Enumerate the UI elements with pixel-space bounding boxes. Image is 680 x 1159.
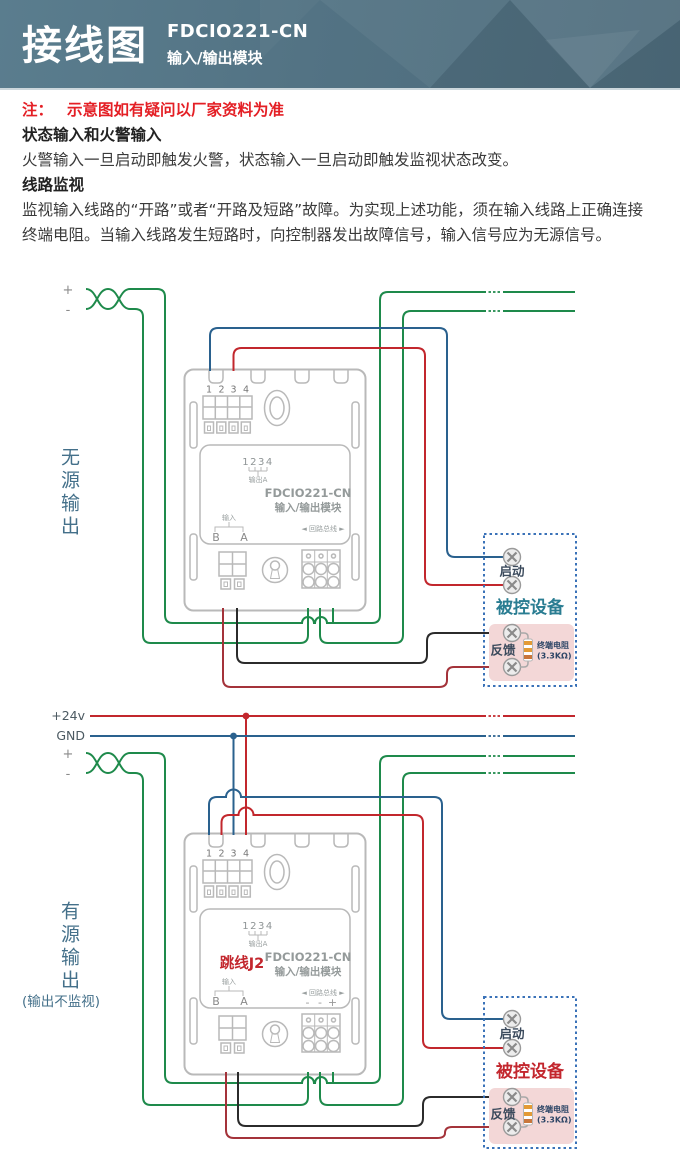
minus-label-top: - <box>66 303 71 318</box>
resistor-band <box>524 648 532 652</box>
screw-terminal <box>504 1040 521 1057</box>
resistor-name: 终端电阻 <box>536 1104 569 1114</box>
page-title: 接线图 <box>22 13 148 71</box>
resistor-band <box>524 655 532 659</box>
note-text: 示意图如有疑问以厂家资料为准 <box>67 101 284 119</box>
resistor-band <box>524 641 532 645</box>
loop-polarity-plus: + <box>328 996 337 1009</box>
header-banner: 接线图 FDCIO221-CN 输入/输出模块 <box>0 0 680 90</box>
output-label: 输出A <box>249 475 268 484</box>
loop-bus-label: ◄ 回路总线 ► <box>301 524 345 533</box>
input-b: B <box>212 531 220 544</box>
product-subtitle: 输入/输出模块 <box>167 47 262 68</box>
resistor-band <box>524 1112 532 1116</box>
feedback-label: 反馈 <box>490 1107 516 1122</box>
resistor-value: (3.3KΩ) <box>537 652 571 661</box>
input-label: 输入 <box>222 513 236 522</box>
side-label-active-output: 有源输出 <box>56 901 83 993</box>
feedback-label: 反馈 <box>490 643 516 658</box>
screw-terminal <box>504 659 521 676</box>
module-title: FDCIO221-CN <box>265 486 352 500</box>
screw-terminal <box>504 1011 521 1028</box>
start-label: 启动 <box>499 1026 525 1041</box>
output-numbers: 1234 <box>242 457 273 468</box>
wire-feedback-maroon <box>223 608 504 687</box>
terminal-number: 1 <box>206 385 212 396</box>
section-body: 监视输入线路的“开路”或者“开路及短路”故障。为实现上述功能，须在输入线路上正确… <box>22 198 658 248</box>
wire-feedback-black <box>238 1072 504 1126</box>
break-marks-green-top <box>489 292 501 311</box>
module-subtitle: 输入/输出模块 <box>275 501 342 514</box>
product-model: FDCIO221-CN <box>167 21 308 42</box>
wire-start-blue <box>209 790 503 1020</box>
terminal-number: 2 <box>218 849 224 860</box>
screw-terminal <box>504 1089 521 1106</box>
note-label: 注： <box>22 101 53 119</box>
wire-feedback-black <box>237 608 504 663</box>
output-label: 输出A <box>249 939 268 948</box>
module-title: FDCIO221-CN <box>265 950 352 964</box>
module-subtitle: 输入/输出模块 <box>275 965 342 978</box>
junction-24v <box>243 713 250 720</box>
side-note-unmonitored: (输出不监视) <box>22 990 142 1010</box>
resistor-name: 终端电阻 <box>536 640 569 650</box>
note-line: 注：示意图如有疑问以厂家资料为准 <box>22 98 658 123</box>
plus-label-bottom: + <box>63 747 74 762</box>
resistor-band <box>524 1105 532 1109</box>
terminal-number: 4 <box>243 385 249 396</box>
section-heading: 线路监视 <box>22 173 658 198</box>
section-heading: 状态输入和火警输入 <box>22 123 658 148</box>
jumper-j2-label: 跳线J2 <box>220 954 264 972</box>
terminal-number: 3 <box>230 385 236 396</box>
loop-polarity-minus2: - <box>318 996 322 1009</box>
screw-terminal <box>504 577 521 594</box>
wire-loop-out <box>320 773 575 1105</box>
screw-terminal <box>504 625 521 642</box>
terminal-number: 3 <box>230 849 236 860</box>
gnd-label: GND <box>56 728 85 743</box>
resistor-value: (3.3KΩ) <box>537 1116 571 1125</box>
terminal-number: 4 <box>243 849 249 860</box>
loop-polarity-minus1: - <box>306 996 310 1009</box>
input-a: A <box>240 995 248 1008</box>
wire-gnd <box>90 736 575 835</box>
terminal-number: 1 <box>206 849 212 860</box>
device-title: 被控设备 <box>496 1061 565 1082</box>
wire-loop-minus <box>86 753 308 1105</box>
wire-loop-minus <box>86 289 308 643</box>
input-label: 输入 <box>222 977 236 986</box>
section-body: 火警输入一旦启动即触发火警，状态输入一旦启动即触发监视状态改变。 <box>22 148 658 173</box>
device-title: 被控设备 <box>496 597 565 618</box>
junction-gnd <box>230 733 237 740</box>
header-facet-pattern <box>260 0 680 88</box>
start-label: 启动 <box>499 564 525 579</box>
resistor-band <box>524 1119 532 1123</box>
wire-start-blue <box>210 328 503 557</box>
wire-start-red <box>234 348 504 585</box>
input-b: B <box>212 995 220 1008</box>
wire-24v <box>90 716 575 835</box>
minus-label-bottom: - <box>66 767 71 782</box>
intro-text: 注：示意图如有疑问以厂家资料为准 状态输入和火警输入 火警输入一旦启动即触发火警… <box>22 98 658 248</box>
side-label-passive-output: 无源输出 <box>56 447 83 539</box>
output-numbers: 1234 <box>242 921 273 932</box>
plus-label-top: + <box>63 283 74 298</box>
input-a: A <box>240 531 248 544</box>
terminal-number: 2 <box>218 385 224 396</box>
power-24v-label: +24v <box>51 708 85 723</box>
break-marks-green-bottom <box>489 756 501 773</box>
